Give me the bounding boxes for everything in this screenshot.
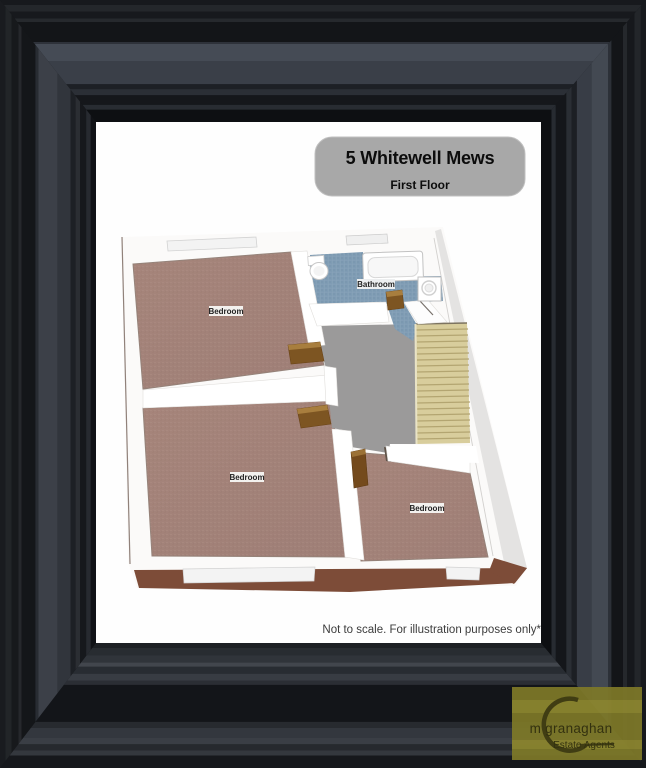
svg-text:Bathroom: Bathroom <box>357 280 395 289</box>
svg-text:Estate Agents: Estate Agents <box>553 740 615 751</box>
svg-text:m granaghan: m granaghan <box>530 721 613 736</box>
svg-text:Bedroom: Bedroom <box>229 473 264 482</box>
svg-text:Bedroom: Bedroom <box>208 307 243 316</box>
svg-text:5 Whitewell Mews: 5 Whitewell Mews <box>346 148 495 168</box>
svg-text:First Floor: First Floor <box>390 178 450 192</box>
svg-text:Not to scale. For illustration: Not to scale. For illustration purposes … <box>322 624 541 636</box>
svg-text:Bedroom: Bedroom <box>409 504 444 513</box>
